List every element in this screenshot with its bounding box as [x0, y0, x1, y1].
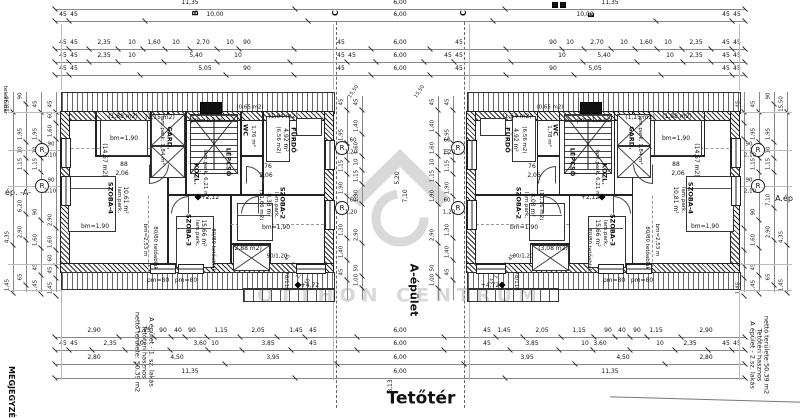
- room-label-sz3p: lam.park,: [193, 220, 199, 246]
- dimension-value: 3,85: [261, 341, 274, 347]
- extension-line: [8, 264, 61, 265]
- dimension-value: 45: [483, 341, 491, 347]
- dimension-value: 45: [70, 40, 78, 46]
- dimension-value: 6,00: [393, 40, 406, 46]
- dimension-value: 45: [48, 101, 54, 108]
- dimension-value: 4,50: [616, 355, 629, 361]
- room-label-sz2: SZOBA-2: [515, 187, 522, 219]
- dimension-value: 7,10: [403, 189, 409, 202]
- wall-hatch: [325, 112, 333, 272]
- dimension-value: 2,05: [535, 328, 548, 334]
- extension-line: [469, 24, 470, 90]
- room-label-win1a: 90: [48, 142, 55, 148]
- roof-window-marker-letter: R: [756, 182, 761, 190]
- roof-window-marker-letter: R: [456, 144, 461, 152]
- room-label-d88: 88: [120, 162, 128, 168]
- extension-line: [739, 24, 740, 90]
- dimension-value: 6,00: [393, 0, 406, 6]
- extension-line: [739, 186, 792, 187]
- dimension-value: 6,00: [393, 328, 406, 334]
- roof-hatch: [61, 92, 335, 114]
- dimension-line: [55, 337, 745, 338]
- room-label-w90120: 90/1,20: [266, 254, 287, 260]
- door-arc-icon: [633, 164, 653, 184]
- dimension-value: 2,35: [683, 341, 696, 347]
- dimension-value: 45: [354, 99, 360, 106]
- dim-tick-icon: [38, 291, 44, 297]
- room-label-sz4m: 10,61 m²: [122, 186, 128, 213]
- dimension-value: 45: [337, 40, 345, 46]
- room-label-pm80b: pm=80: [603, 278, 625, 284]
- dimension-line: [774, 92, 775, 292]
- room-label-wc: WC: [552, 124, 559, 136]
- room-label-sz3p: lam.park,: [601, 220, 607, 246]
- room-label-furdom: 4,92 m²: [512, 128, 518, 152]
- dimension-value: 3,60: [593, 341, 606, 347]
- extension-line: [61, 24, 62, 90]
- room-label-a288: (3,08 m2): [538, 246, 568, 252]
- dimension-value: 65: [18, 274, 24, 281]
- room-label-pm14: pm=1,4 m: [191, 118, 223, 124]
- section-marker-c-left: C: [332, 10, 340, 16]
- dimension-value: 90: [243, 66, 251, 72]
- room-label-tab1: 80/80 tetőablak: [643, 226, 649, 270]
- room-label-d76m: 2,06: [527, 173, 540, 179]
- room-label-a188: (1,88 m2): [108, 114, 138, 120]
- dimension-value: 45: [722, 40, 730, 46]
- room-label-d88: 88: [672, 162, 680, 168]
- room-label-sz4: SZOBA-4: [687, 182, 694, 214]
- wall-hatch: [467, 112, 475, 272]
- room-label-pm14: pm=1,4 m: [577, 118, 609, 124]
- room-label-win1b: 2,10: [744, 153, 756, 159]
- dim-tick-icon: [756, 291, 762, 297]
- dimension-value: 45: [430, 99, 436, 106]
- room-label-sz4p: lam.park,: [679, 187, 685, 213]
- dimension-value: 45: [445, 99, 451, 106]
- dimension-value: 90: [549, 40, 557, 46]
- dimension-value: 3,60: [193, 341, 206, 347]
- room-label-a065: (0,65 m2): [236, 105, 263, 111]
- dimension-value: 6,00: [393, 369, 406, 375]
- window: [598, 264, 624, 274]
- dimension-value: 45: [751, 101, 757, 108]
- room-label-d88m: 2,06: [115, 171, 128, 177]
- room-label-lvl_bot: +4,72: [481, 283, 499, 289]
- room-label-gardp: lam.park, 1,84 m²: [636, 115, 642, 164]
- dimension-value: 10: [581, 341, 589, 347]
- dimension-value: 5,40: [189, 53, 202, 59]
- roof-window-marker-letter: R: [456, 204, 461, 212]
- dimension-value: 10: [226, 40, 234, 46]
- dimension-value: 45: [48, 267, 54, 274]
- dimension-value: 1,60: [147, 40, 160, 46]
- dimension-value: 10: [136, 341, 144, 347]
- window: [61, 138, 71, 168]
- dimension-value: 2,70: [196, 40, 209, 46]
- dimension-value: 45: [455, 40, 463, 46]
- room-label-pm80b: pm=80: [175, 278, 197, 284]
- room-label-sz3: SZOBA-3: [609, 214, 616, 246]
- window: [467, 140, 477, 170]
- room-label-wc: WC: [242, 124, 249, 136]
- dimension-value: 3,85: [525, 341, 538, 347]
- dimension-value: 45: [309, 341, 317, 347]
- dimension-value: 45: [339, 99, 345, 106]
- dimension-value: 3,95: [266, 355, 279, 361]
- dimension-value: 15,50: [414, 85, 426, 100]
- dimension-value: 1,15: [214, 328, 227, 334]
- room-label-lvl_mid: +2,12: [201, 195, 219, 201]
- dimension-line: [438, 96, 439, 300]
- dimension-value: 10: [128, 53, 136, 59]
- dimension-value: 10,00: [576, 12, 593, 18]
- window: [325, 200, 335, 230]
- dimension-line: [55, 21, 745, 22]
- room-label-gardp: lam.park, 1,84 m²: [158, 115, 164, 164]
- dimension-value: 11,35: [601, 0, 618, 6]
- dimension-value: 10: [211, 341, 219, 347]
- room-label-wcm: 1,78 m²: [545, 125, 551, 147]
- room-label-lepcso: LÉPCSŐ: [569, 148, 576, 176]
- room-label-win1a: 90: [746, 142, 753, 148]
- dimension-value: 10: [620, 40, 628, 46]
- room-label-kozlp: lam.park, 6,21 m²: [593, 149, 599, 198]
- section-mark-icon: [552, 2, 558, 8]
- extension-line: [8, 112, 61, 113]
- interior-wall: [538, 155, 560, 157]
- room-label-sz2: SZOBA-2: [279, 187, 286, 219]
- dimension-value: 8,13: [388, 379, 394, 392]
- dimension-value: 2,80: [699, 355, 712, 361]
- dimension-value: 45: [733, 12, 741, 18]
- room-label-bm190a: bm=1,90: [662, 136, 690, 142]
- room-label-a164: (1,64 m2): [502, 114, 532, 120]
- dimension-value: 40: [174, 328, 182, 334]
- dimension-line: [55, 350, 745, 351]
- room-label-lepcso: LÉPCSŐ: [225, 148, 232, 176]
- door-arc-icon: [149, 164, 169, 184]
- dimension-value: 45: [722, 341, 730, 347]
- architectural-floor-plan: OTTHON CENTRUM Tetőtér A-épület MEGJEGYZ…: [0, 0, 800, 418]
- room-label-gap2a: 60: [350, 198, 357, 204]
- dimension-value: 3,95: [520, 355, 533, 361]
- roof-hatch: [467, 92, 741, 114]
- room-label-sz3: SZOBA-3: [185, 214, 192, 246]
- right-edge-building-label: A.ép: [775, 195, 793, 203]
- room-label-win2b: 2,10: [744, 189, 756, 195]
- room-label-d76: 76: [528, 164, 536, 170]
- extension-line: [739, 112, 792, 113]
- dimension-value: 10: [128, 40, 136, 46]
- window: [731, 176, 741, 206]
- dimension-value: 6,00: [393, 341, 406, 347]
- extension-line: [469, 290, 470, 380]
- dimension-value: 10,00: [206, 12, 223, 18]
- fixture: [296, 118, 322, 136]
- dimension-value: 45: [70, 341, 78, 347]
- chimney: [580, 102, 602, 114]
- extension-line: [333, 24, 334, 90]
- dimension-value: 10: [430, 159, 436, 166]
- dimension-value: 2,80: [87, 355, 100, 361]
- dimension-value: 90: [33, 209, 39, 216]
- interior-wall: [704, 112, 706, 156]
- room-label-kozlp: lam.park, 6,21 m²: [201, 149, 207, 198]
- room-label-wcm: 1,76 m²: [249, 125, 255, 147]
- dimension-value: 45: [455, 66, 463, 72]
- terrain-line: [610, 396, 800, 402]
- interior-wall: [475, 194, 633, 196]
- dimension-value: 40: [618, 328, 626, 334]
- dimension-value: 2,90: [87, 328, 100, 334]
- interior-wall: [240, 155, 262, 157]
- dimension-value: 90: [18, 93, 24, 100]
- dimension-value: 45: [339, 269, 345, 276]
- window: [476, 264, 506, 274]
- extension-line: [739, 264, 792, 265]
- interior-wall: [167, 194, 325, 196]
- room-label-bm190c: bm=1,90: [510, 225, 538, 231]
- dimension-value: 90: [604, 328, 612, 334]
- dimension-line: [787, 92, 788, 292]
- dimension-value: 90: [188, 328, 196, 334]
- room-label-furdog: (6,56 m2): [274, 126, 280, 153]
- room-label-sz4m: 10,81 m²: [672, 186, 678, 213]
- notes-heading: MEGJEGYZÉ: [7, 366, 15, 418]
- room-label-bm190a: bm=1,90: [110, 136, 138, 142]
- dimension-value: 10: [664, 40, 672, 46]
- dimension-value: 5,05: [588, 66, 601, 72]
- dimension-value: 10: [234, 53, 242, 59]
- interior-wall: [230, 195, 232, 264]
- window: [178, 264, 204, 274]
- room-label-gap2b: 1,20: [443, 210, 455, 216]
- dimension-value: 45: [70, 12, 78, 18]
- window: [296, 264, 326, 274]
- interior-wall: [95, 112, 97, 156]
- room-label-r78118: 78/118: [282, 271, 288, 290]
- window: [61, 176, 71, 206]
- room-label-g1457: (14,57 m2): [693, 143, 699, 176]
- area-note-right-3: nettó területe:50,39 m2: [763, 316, 770, 394]
- dimension-line: [55, 75, 745, 76]
- room-label-sz2g: (11,16 m2): [537, 190, 543, 221]
- dimension-value: 60: [48, 255, 54, 262]
- section-marker-c-right: C: [460, 10, 468, 16]
- extension-line: [333, 290, 334, 380]
- dimension-value: 5,05: [198, 66, 211, 72]
- balcony-railing: [243, 288, 335, 302]
- door-arc-icon: [613, 196, 631, 214]
- room-label-furdo: FÜRDŐ: [504, 127, 511, 153]
- door-arc-icon: [171, 196, 189, 214]
- roof-window-marker-letter: R: [340, 144, 345, 152]
- room-label-a065: (0,65 m2): [536, 105, 563, 111]
- dimension-value: 45: [445, 269, 451, 276]
- dimension-value: 45: [483, 328, 491, 334]
- dimension-value: 45: [722, 12, 730, 18]
- section-marker-b: B: [192, 10, 200, 16]
- dimension-value: 2,35: [103, 341, 116, 347]
- dimension-value: 1,15: [649, 328, 662, 334]
- dimension-value: 90: [751, 209, 757, 216]
- headroom-line: [148, 196, 149, 272]
- room-label-a188: (1,88 m2): [662, 114, 692, 120]
- roof-window-marker-letter: R: [756, 146, 761, 154]
- building-axis-label: A-épület: [409, 264, 420, 317]
- room-label-tab2: 80/80 tetőablak: [585, 228, 591, 272]
- dimension-value: 10: [558, 53, 566, 59]
- room-label-a288: (2,88 m2): [232, 246, 262, 252]
- room-label-pm80a: pm=80: [631, 278, 653, 284]
- dim-tick-icon: [53, 293, 59, 299]
- room-label-a164: (1,64 m2): [268, 114, 298, 120]
- room-label-gap1a: 60: [350, 138, 357, 144]
- dimension-value: 2,35: [689, 53, 702, 59]
- room-label-sz2p: lam.park,: [272, 192, 278, 218]
- dimension-value: 45: [309, 328, 317, 334]
- extension-line: [8, 290, 61, 291]
- room-label-bm253: bm=2,53 m: [141, 224, 147, 257]
- area-note-left-3: nettó területe: 50,39 m2: [134, 312, 141, 392]
- room-label-gard: GARD.: [166, 126, 173, 149]
- dimension-value: 1,45: [497, 328, 510, 334]
- window: [731, 138, 741, 168]
- room-label-furdog: (6,56 m2): [520, 126, 526, 153]
- dimension-value: 50: [354, 265, 360, 272]
- room-label-lvl_bot: +4,72: [301, 283, 319, 289]
- dimension-value: 45: [348, 53, 356, 59]
- room-label-gard: GARD.: [628, 126, 635, 149]
- dimension-value: 2,35: [97, 40, 110, 46]
- room-label-sz3m: 15,66 m²: [200, 219, 206, 246]
- dimension-value: 6,00: [393, 66, 406, 72]
- window: [325, 140, 335, 170]
- room-label-gap1a: 60: [444, 138, 451, 144]
- room-label-r78118: 78/118: [512, 271, 518, 290]
- room-label-sz2m: 8,38 m²: [265, 193, 271, 217]
- room-label-bm190b: bm=1,90: [691, 224, 719, 230]
- room-label-d76m: 2,06: [259, 173, 272, 179]
- dimension-value: 5,40: [597, 53, 610, 59]
- window: [467, 200, 477, 230]
- dimension-value: 11,35: [601, 369, 618, 375]
- dimension-value: 5,20: [395, 171, 401, 184]
- dimension-value: 2,05: [251, 328, 264, 334]
- dimension-value: 6,00: [393, 355, 406, 361]
- dimension-value: 90: [766, 93, 772, 100]
- room-label-gap2a: 60: [444, 198, 451, 204]
- chimney: [200, 102, 222, 114]
- dimension-value: 90: [549, 66, 557, 72]
- dimension-value: 10: [566, 40, 574, 46]
- dimension-line: [362, 96, 363, 300]
- room-label-gap2b: 1,20: [345, 210, 357, 216]
- dimension-value: 1,15: [137, 328, 150, 334]
- room-label-lvl_mid: +2,12: [581, 195, 599, 201]
- dimension-value: 1,15: [572, 328, 585, 334]
- dimension-value: 45: [337, 66, 345, 72]
- room-label-kozl: KÖZL.: [193, 163, 200, 185]
- dimension-value: 10: [354, 159, 360, 166]
- dimension-value: 10: [656, 341, 664, 347]
- dimension-value: 50: [430, 265, 436, 272]
- dimension-value: 15,50: [348, 85, 360, 100]
- dim-tick-icon: [741, 293, 747, 299]
- room-label-win2a: 90: [48, 178, 55, 184]
- dimension-line: [13, 92, 14, 292]
- room-label-d88m: 2,06: [671, 171, 684, 177]
- room-label-g1457: (14,57 m2): [101, 143, 107, 176]
- room-label-sz4p: lam.park,: [115, 187, 121, 213]
- room-label-bm253: bm=2,53 m: [653, 224, 659, 257]
- dimension-value: 1,45: [289, 328, 302, 334]
- room-label-furdom: 4,92 m²: [282, 128, 288, 152]
- dimension-line: [55, 62, 745, 63]
- extension-line: [739, 290, 740, 380]
- room-label-bm190b: bm=1,90: [81, 224, 109, 230]
- dimension-value: 2,90: [699, 328, 712, 334]
- door-arc-icon: [538, 166, 556, 184]
- dimension-value: 45: [337, 53, 345, 59]
- room-label-sz2m: 8,08 m²: [529, 193, 535, 217]
- fixture: [480, 118, 506, 136]
- interior-wall: [185, 112, 187, 195]
- dimension-value: 2,35: [689, 40, 702, 46]
- dimension-value: 45: [455, 53, 463, 59]
- room-label-bm190c: bm=1,90: [262, 225, 290, 231]
- extension-line: [739, 150, 792, 151]
- room-label-win1b: 2,10: [44, 153, 56, 159]
- room-label-win2b: 2,10: [44, 189, 56, 195]
- dimension-value: 45: [722, 53, 730, 59]
- dimension-value: 10: [666, 53, 674, 59]
- dimension-value: 11,35: [181, 369, 198, 375]
- dimension-value: 45: [444, 53, 452, 59]
- dimension-value: 2,35: [97, 53, 110, 59]
- dimension-value: 10: [172, 40, 180, 46]
- section-mark-icon: [560, 2, 566, 8]
- dimension-value: 90: [243, 40, 251, 46]
- extension-line: [739, 290, 792, 291]
- interior-wall: [614, 112, 616, 195]
- room-label-gap1b: 1,20: [345, 150, 357, 156]
- room-label-sz2g: (11,66 m2): [257, 190, 263, 221]
- dimension-line: [55, 49, 745, 50]
- floor-title: Tetőtér: [387, 391, 456, 408]
- room-label-sz3m: 15,66 m²: [594, 219, 600, 246]
- roof-window-marker-letter: R: [340, 204, 345, 212]
- dimension-value: 6,00: [393, 53, 406, 59]
- dimension-line: [55, 364, 745, 365]
- dimension-value: 2,70: [590, 40, 603, 46]
- door-arc-icon: [543, 196, 561, 214]
- dimension-value: 45: [33, 101, 39, 108]
- room-label-sz2p: lam.park,: [522, 192, 528, 218]
- dimension-value: 6,00: [393, 12, 406, 18]
- room-label-w90120: 90/1,20: [512, 254, 533, 260]
- room-label-win2a: 90: [746, 178, 753, 184]
- dimension-value: 4,50: [170, 355, 183, 361]
- room-label-sz4: SZOBA-4: [107, 182, 114, 214]
- dimension-value: 11,35: [181, 0, 198, 6]
- dimension-line: [55, 378, 745, 379]
- room-label-d76: 76: [264, 164, 272, 170]
- dimension-line: [55, 9, 745, 10]
- room-label-furdo: FÜRDŐ: [290, 127, 297, 153]
- dimension-value: 45: [59, 12, 67, 18]
